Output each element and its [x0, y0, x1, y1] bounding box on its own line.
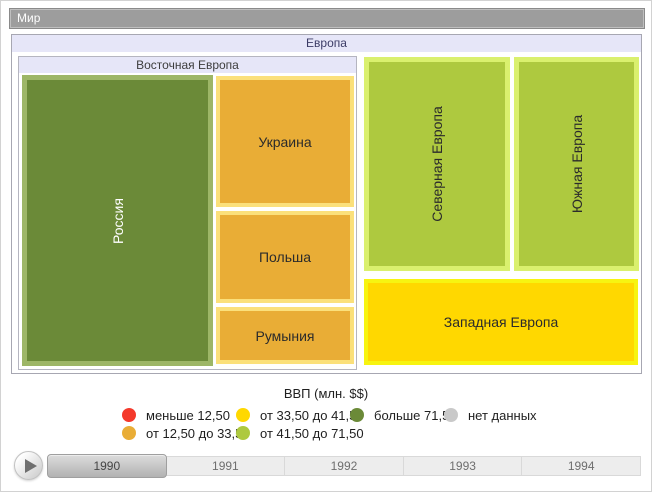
- play-icon: [25, 459, 37, 473]
- legend-item-label: меньше 12,50: [146, 408, 230, 423]
- legend-item-no-data: нет данных: [444, 407, 537, 423]
- treemap-node-romania[interactable]: Румыния: [216, 307, 354, 364]
- legend-item-label: нет данных: [468, 408, 537, 423]
- treemap-node-southern-europe[interactable]: Южная Европа: [514, 57, 639, 271]
- legend-dot-red: [122, 408, 136, 422]
- treemap-node-southern-europe-fill: Южная Европа: [519, 62, 634, 266]
- year-segment-1990[interactable]: 1990: [47, 454, 167, 478]
- year-segment-1992[interactable]: 1992: [284, 456, 404, 476]
- treemap-node-label: Южная Европа: [569, 115, 585, 213]
- year-segment-1991[interactable]: 1991: [166, 456, 286, 476]
- legend-dot-dark-green: [350, 408, 364, 422]
- legend-dot-orange: [122, 426, 136, 440]
- year-segment-1993[interactable]: 1993: [403, 456, 523, 476]
- legend-dot-gray: [444, 408, 458, 422]
- treemap-node-romania-fill: Румыния: [220, 311, 350, 360]
- timeline-track: 1990 1991 1992 1993 1994: [47, 454, 641, 478]
- legend-item-12-50-33-50: от 12,50 до 33,50: [122, 425, 250, 441]
- treemap-node-western-europe[interactable]: Западная Европа: [364, 279, 638, 365]
- treemap-node-russia[interactable]: Россия: [22, 75, 213, 366]
- treemap-node-ukraine[interactable]: Украина: [216, 76, 354, 207]
- treemap-root-label: Европа: [306, 36, 347, 50]
- treemap-node-label: Северная Европа: [429, 106, 445, 221]
- treemap-group-eastern-europe[interactable]: Восточная Европа Россия Украина Польша: [18, 56, 357, 370]
- legend-dot-yellow: [236, 408, 250, 422]
- treemap-node-label: Западная Европа: [368, 314, 634, 330]
- treemap-node-poland[interactable]: Польша: [216, 211, 354, 303]
- play-button[interactable]: [14, 451, 43, 480]
- legend-item-lt-12-50: меньше 12,50: [122, 407, 230, 423]
- legend-item-label: от 12,50 до 33,50: [146, 426, 250, 441]
- legend-item-gt-71-50: больше 71,50: [350, 407, 457, 423]
- breadcrumb-bar[interactable]: Мир: [9, 8, 645, 29]
- year-segment-1994[interactable]: 1994: [521, 456, 641, 476]
- treemap-node-northern-europe-fill: Северная Европа: [369, 62, 505, 266]
- legend-item-41-50-71-50: от 41,50 до 71,50: [236, 425, 364, 441]
- timeline: 1990 1991 1992 1993 1994: [9, 450, 645, 482]
- treemap-node-ukraine-fill: Украина: [220, 80, 350, 203]
- legend-item-label: от 33,50 до 41,50: [260, 408, 364, 423]
- legend-item-label: от 41,50 до 71,50: [260, 426, 364, 441]
- app-window: Мир Европа Восточная Европа Россия Украи…: [0, 0, 652, 492]
- legend-item-33-50-41-50: от 33,50 до 41,50: [236, 407, 364, 423]
- treemap-node-western-europe-fill: Западная Европа: [368, 283, 634, 361]
- treemap-node-poland-fill: Польша: [220, 215, 350, 299]
- treemap-group-header[interactable]: Восточная Европа: [19, 57, 356, 73]
- legend-title: ВВП (млн. $$): [1, 386, 651, 401]
- treemap-group-label: Восточная Европа: [136, 58, 239, 72]
- treemap-node-northern-europe[interactable]: Северная Европа: [364, 57, 510, 271]
- legend-dot-lime: [236, 426, 250, 440]
- treemap-node-label: Польша: [220, 249, 350, 265]
- treemap-root-header[interactable]: Европа: [12, 35, 641, 52]
- treemap-node-label: Украина: [220, 134, 350, 150]
- breadcrumb-label: Мир: [17, 11, 40, 25]
- treemap-node-label: Румыния: [220, 328, 350, 344]
- treemap-panel: Европа Восточная Европа Россия Украина П…: [11, 34, 642, 374]
- treemap-node-russia-fill: Россия: [27, 80, 208, 361]
- treemap-node-label: Россия: [110, 198, 126, 244]
